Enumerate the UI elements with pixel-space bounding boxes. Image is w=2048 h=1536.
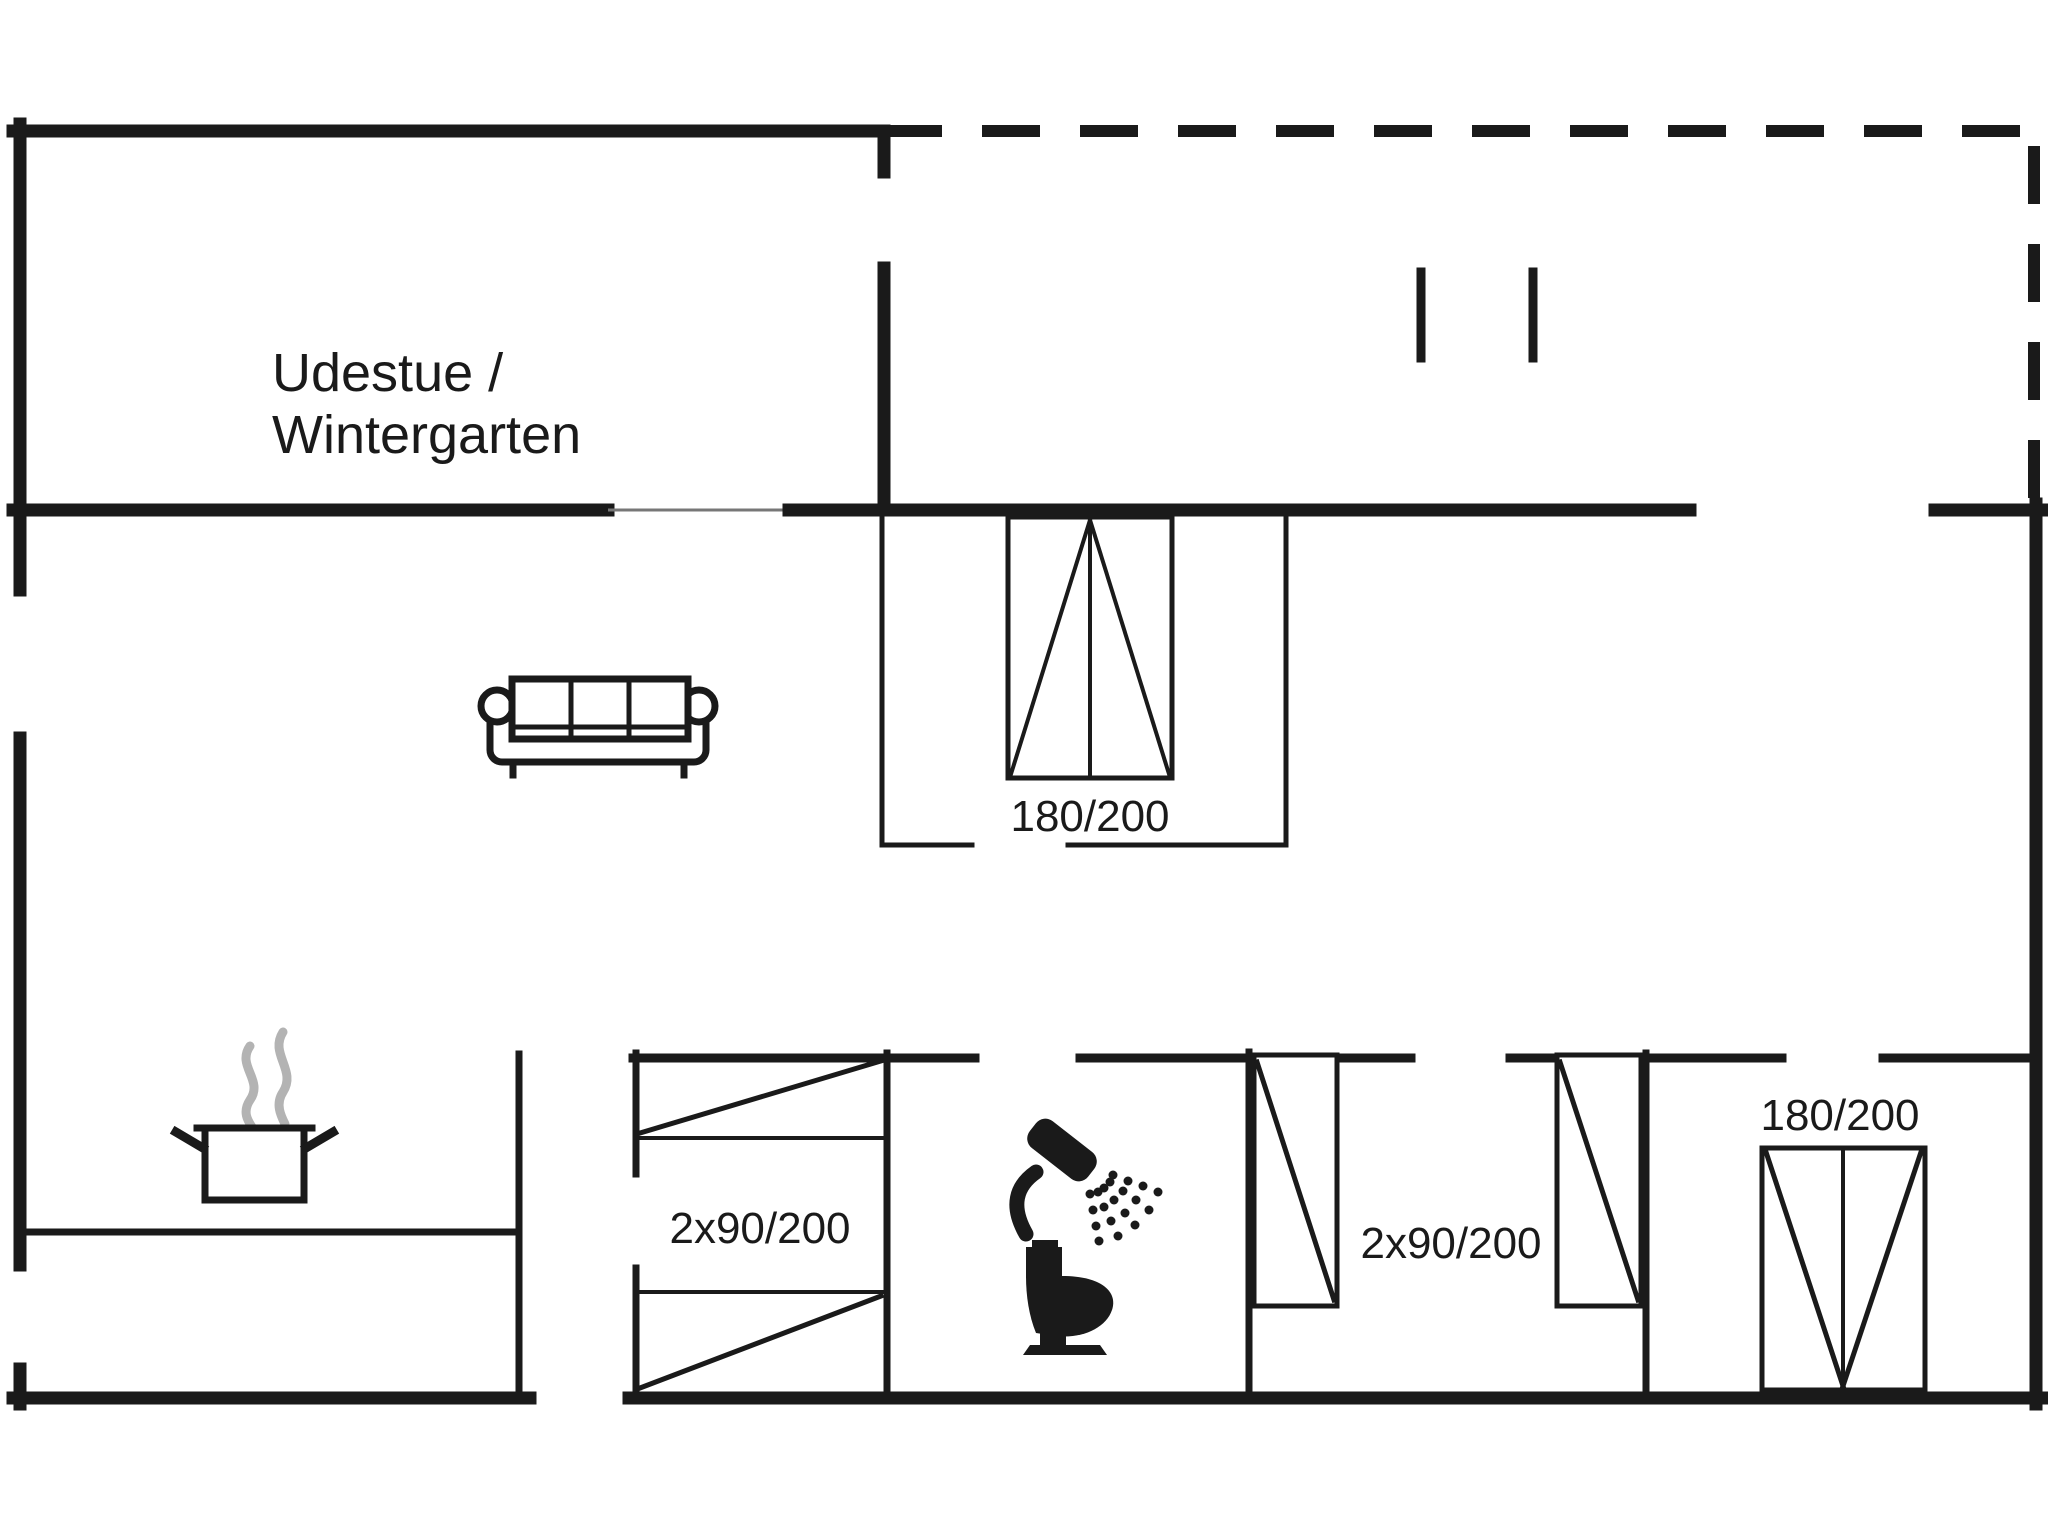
- toilet-lid: [1032, 1240, 1058, 1248]
- toilet-bowl: [1026, 1276, 1113, 1336]
- terrace-dashed-boundary: [884, 131, 2042, 500]
- double-bed-icon: [1008, 517, 1172, 778]
- pot-handle-left: [176, 1132, 203, 1148]
- bed-size-label-right-middle: 2x90/200: [1360, 1219, 1541, 1268]
- bed-size-label-left: 2x90/200: [669, 1204, 850, 1253]
- sofa-icon: [481, 679, 715, 775]
- room-left-bedroom: 2x90/200: [633, 1053, 975, 1395]
- toilet-base: [1023, 1345, 1107, 1355]
- room-middle-bedroom: 180/200: [882, 516, 1286, 845]
- cooking-pot-icon: [176, 1128, 333, 1200]
- steam-wisp-left: [246, 1046, 254, 1127]
- kitchen: [20, 1032, 519, 1398]
- bunk-bottom-diagonal: [640, 1296, 881, 1388]
- single-bed-icon-left: [1254, 1055, 1337, 1306]
- bunk-top-diagonal: [640, 1061, 881, 1133]
- room-label-udestue-line2: Wintergarten: [272, 405, 581, 465]
- bed-size-label-right: 180/200: [1760, 1091, 1919, 1140]
- toilet-pedestal: [1040, 1332, 1066, 1346]
- shower-handle: [1017, 1172, 1036, 1234]
- bathroom: [1017, 1052, 1411, 1395]
- room-label-udestue-line1: Udestue /: [272, 343, 503, 403]
- double-bed-vertical-icon: [1762, 1148, 1925, 1390]
- toilet-icon: [1023, 1240, 1113, 1355]
- steam-icon: [246, 1032, 287, 1127]
- shower-spray-dots: [1086, 1171, 1163, 1246]
- window-tick-marks: [1421, 272, 1533, 358]
- room-udestue: Udestue / Wintergarten: [272, 131, 884, 510]
- single-bed-icon-right: [1557, 1055, 1641, 1306]
- sofa-arm-left: [481, 690, 513, 722]
- toilet-tank: [1026, 1247, 1062, 1278]
- pot-body: [205, 1128, 304, 1200]
- floor-plan: Udestue / Wintergarten 180/200: [0, 0, 2048, 1536]
- room-right-middle-bedroom: 2x90/200: [1254, 1053, 1782, 1395]
- steam-wisp-right: [279, 1032, 287, 1124]
- sofa-back: [512, 679, 688, 739]
- pot-handle-right: [306, 1132, 333, 1148]
- room-right-bedroom: 180/200: [1760, 1058, 2036, 1390]
- bed-size-label-middle: 180/200: [1010, 792, 1169, 841]
- shower-icon: [1017, 1114, 1163, 1246]
